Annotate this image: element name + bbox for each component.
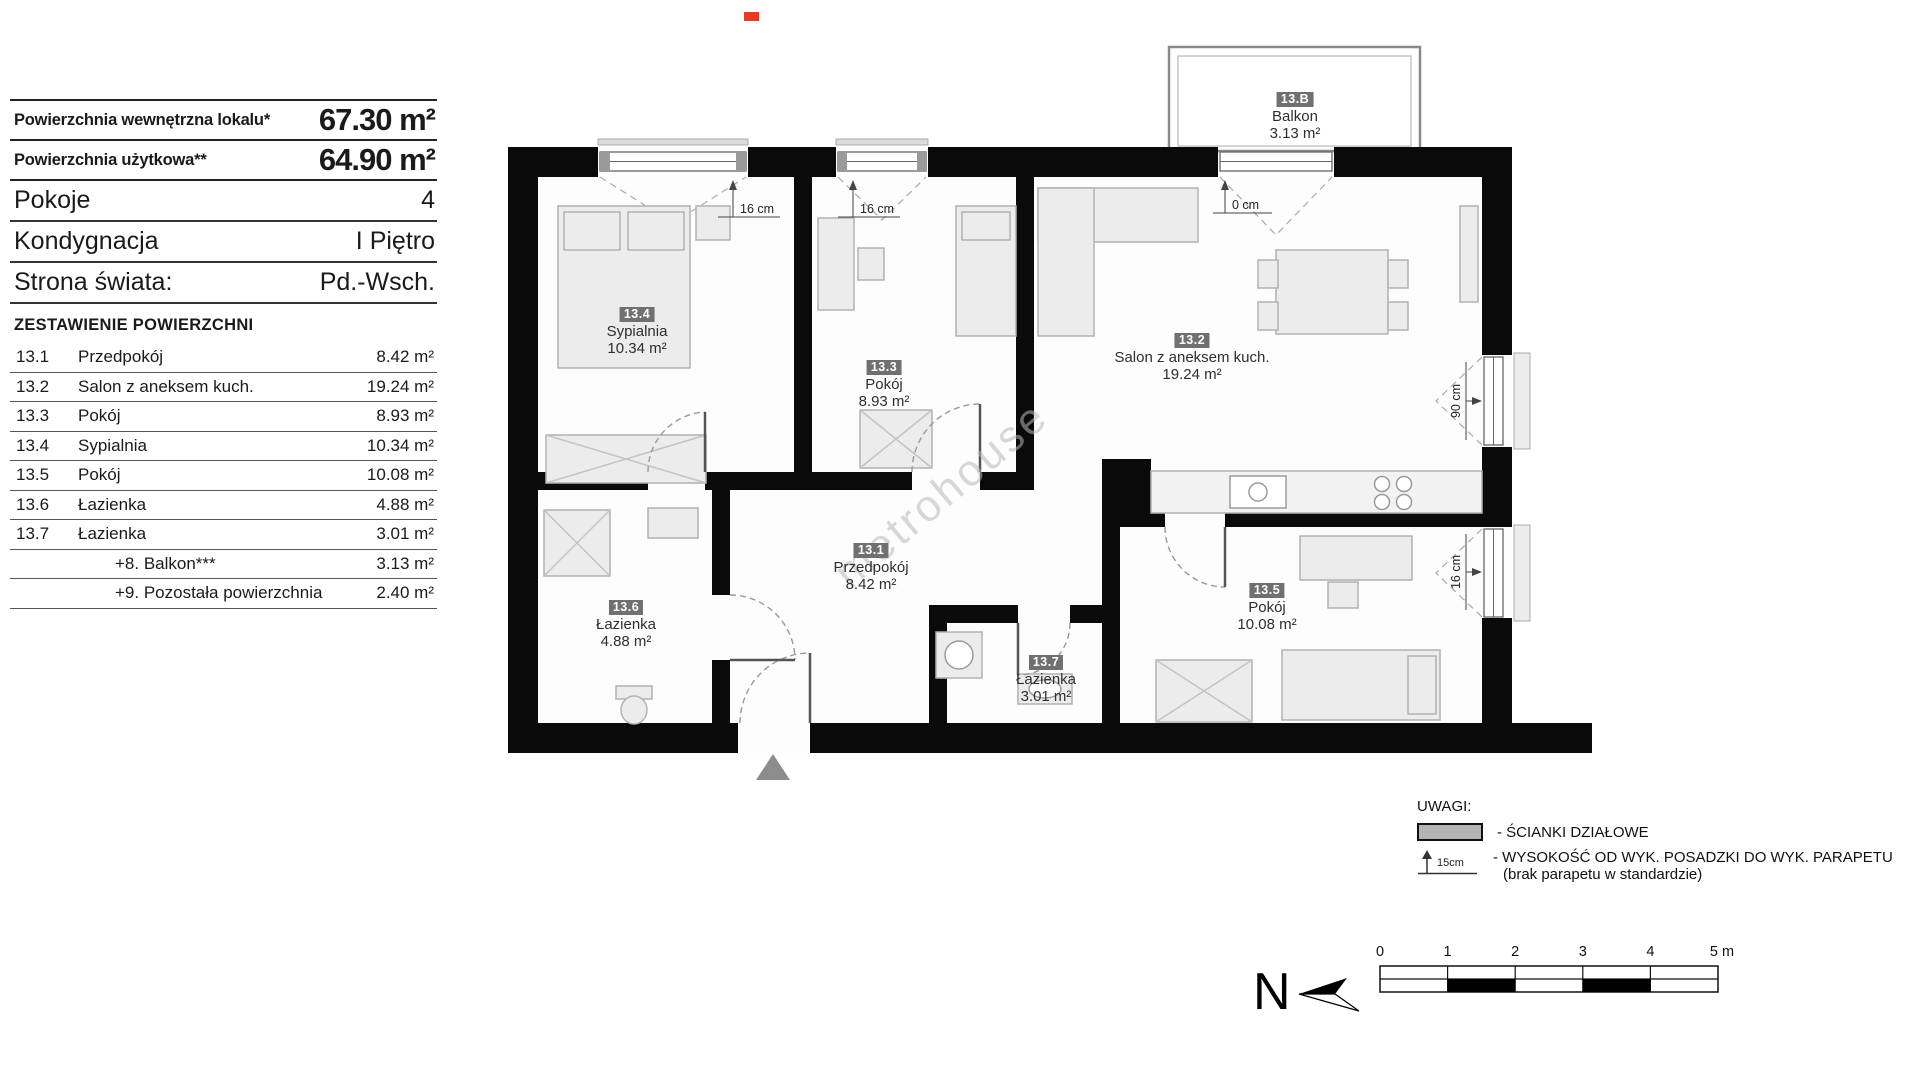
room-badge: 13.7 (1029, 655, 1063, 670)
room-number: 13.2 (10, 377, 78, 397)
svg-text:0 cm: 0 cm (1232, 198, 1259, 212)
sill-height-value: 15cm (1437, 857, 1464, 869)
room-badge: 13.2 (1175, 333, 1209, 348)
info-panel: Powierzchnia wewnętrzna lokalu* 67.30 m²… (10, 99, 437, 609)
table-row: 13.7 Łazienka 3.01 m² (10, 520, 437, 550)
legend-partition-row: - ŚCIANKI DZIAŁOWE (1417, 823, 1893, 841)
floorplan-page: { "info_panel": { "rows_top": [ {"label"… (0, 0, 1920, 1067)
legend-title: UWAGI: (1417, 798, 1893, 815)
svg-text:2: 2 (1511, 944, 1519, 960)
room-label-lazienka-13-6: 13.6 Łazienka 4.88 m² (596, 598, 656, 650)
sill-height-note: (brak parapetu w standardzie) (1493, 866, 1893, 883)
room-name: Pokój (78, 406, 376, 426)
rooms-count-label: Pokoje (14, 186, 90, 215)
scale-bar-drawing: 0 1 2 3 4 5 m (1372, 942, 1744, 1006)
table-row: 13.2 Salon z aneksem kuch. 19.24 m² (10, 373, 437, 403)
entrance-marker (756, 754, 790, 780)
table-row: +9. Pozostała powierzchnia 2.40 m² (10, 579, 437, 609)
area-list-title: ZESTAWIENIE POWIERZCHNI (14, 316, 437, 335)
room-name: Salon z aneksem kuch. (1114, 349, 1269, 366)
room-number: 13.4 (10, 436, 78, 456)
room-area: 19.24 m² (1114, 366, 1269, 383)
partition-wall-swatch (1417, 823, 1483, 841)
room-name: Pokój (1237, 599, 1296, 616)
room-label-przedpokoj: 13.1 Przedpokój 8.42 m² (833, 541, 908, 593)
room-badge: 13.B (1277, 92, 1313, 107)
usable-area-row: Powierzchnia użytkowa** 64.90 m² (10, 141, 437, 181)
room-badge: 13.5 (1250, 583, 1284, 598)
internal-area-label: Powierzchnia wewnętrzna lokalu* (14, 111, 270, 130)
room-name: Łazienka (78, 524, 376, 544)
usable-area-label: Powierzchnia użytkowa** (14, 151, 207, 170)
usable-area-value: 64.90 m² (319, 142, 435, 178)
room-name: Sypialnia (607, 323, 668, 340)
room-number: 13.3 (10, 406, 78, 426)
svg-text:1: 1 (1444, 944, 1452, 960)
svg-text:4: 4 (1646, 944, 1654, 960)
room-badge: 13.3 (867, 360, 901, 375)
table-row: 13.5 Pokój 10.08 m² (10, 461, 437, 491)
red-mark (744, 12, 759, 21)
room-label-pokoj-13-3: 13.3 Pokój 8.93 m² (859, 358, 910, 410)
room-number: 13.5 (10, 465, 78, 485)
room-badge: 13.1 (854, 543, 888, 558)
sill-height-icon: 15cm (1417, 849, 1483, 875)
svg-text:16 cm: 16 cm (860, 202, 894, 216)
room-area: 10.08 m² (1237, 616, 1296, 633)
svg-text:16 cm: 16 cm (1449, 555, 1463, 589)
orientation-value: Pd.-Wsch. (320, 268, 435, 297)
svg-text:5 m: 5 m (1710, 944, 1734, 960)
room-name: Sypialnia (78, 436, 367, 456)
orientation-label: Strona świata: (14, 268, 172, 297)
legend-height-row: 15cm - WYSOKOŚĆ OD WYK. POSADZKI DO WYK.… (1417, 849, 1893, 883)
room-label-sypialnia: 13.4 Sypialnia 10.34 m² (607, 305, 668, 357)
room-name: Łazienka (596, 616, 656, 633)
room-area: 3.01 m² (1016, 688, 1076, 705)
room-area: 8.42 m² (833, 576, 908, 593)
table-row: 13.1 Przedpokój 8.42 m² (10, 343, 437, 373)
scale-bar: 0 1 2 3 4 5 m (1372, 942, 1744, 1011)
room-name: +9. Pozostała powierzchnia (78, 583, 376, 603)
legend: UWAGI: - ŚCIANKI DZIAŁOWE 15cm - WYSOKOŚ… (1417, 798, 1893, 891)
internal-area-row: Powierzchnia wewnętrzna lokalu* 67.30 m² (10, 99, 437, 141)
room-area: 10.34 m² (607, 340, 668, 357)
internal-area-value: 67.30 m² (319, 102, 435, 138)
svg-text:3: 3 (1579, 944, 1587, 960)
room-name: Przedpokój (833, 559, 908, 576)
room-label-salon: 13.2 Salon z aneksem kuch. 19.24 m² (1114, 331, 1269, 383)
room-badge: 13.4 (620, 307, 654, 322)
rooms-count-row: Pokoje 4 (10, 181, 437, 222)
table-row: +8. Balkon*** 3.13 m² (10, 550, 437, 580)
room-name: Balkon (1270, 108, 1321, 125)
orientation-row: Strona świata: Pd.-Wsch. (10, 263, 437, 304)
storey-row: Kondygnacja I Piętro (10, 222, 437, 263)
room-label-balkon: 13.B Balkon 3.13 m² (1270, 90, 1321, 142)
room-name: Pokój (859, 376, 910, 393)
room-area: 4.88 m² (596, 633, 656, 650)
north-label: N (1253, 966, 1291, 1018)
room-area: 3.13 m² (1270, 125, 1321, 142)
partition-wall-label: - ŚCIANKI DZIAŁOWE (1497, 824, 1649, 841)
room-name: +8. Balkon*** (78, 554, 376, 574)
table-row: 13.6 Łazienka 4.88 m² (10, 491, 437, 521)
room-name: Łazienka (1016, 671, 1076, 688)
svg-text:16 cm: 16 cm (740, 202, 774, 216)
room-area: 8.93 m² (859, 393, 910, 410)
room-badge: 13.6 (609, 600, 643, 615)
room-number: 13.7 (10, 524, 78, 544)
room-name: Pokój (78, 465, 367, 485)
room-name: Salon z aneksem kuch. (78, 377, 367, 397)
storey-label: Kondygnacja (14, 227, 159, 256)
room-name: Przedpokój (78, 347, 376, 367)
room-number: 13.6 (10, 495, 78, 515)
room-label-pokoj-13-5: 13.5 Pokój 10.08 m² (1237, 581, 1296, 633)
svg-text:90 cm: 90 cm (1449, 384, 1463, 418)
room-label-lazienka-13-7: 13.7 Łazienka 3.01 m² (1016, 653, 1076, 705)
table-row: 13.3 Pokój 8.93 m² (10, 402, 437, 432)
sill-height-label: - WYSOKOŚĆ OD WYK. POSADZKI DO WYK. PARA… (1493, 849, 1893, 866)
svg-text:0: 0 (1376, 944, 1384, 960)
table-row: 13.4 Sypialnia 10.34 m² (10, 432, 437, 462)
room-name: Łazienka (78, 495, 376, 515)
room-number: 13.1 (10, 347, 78, 367)
